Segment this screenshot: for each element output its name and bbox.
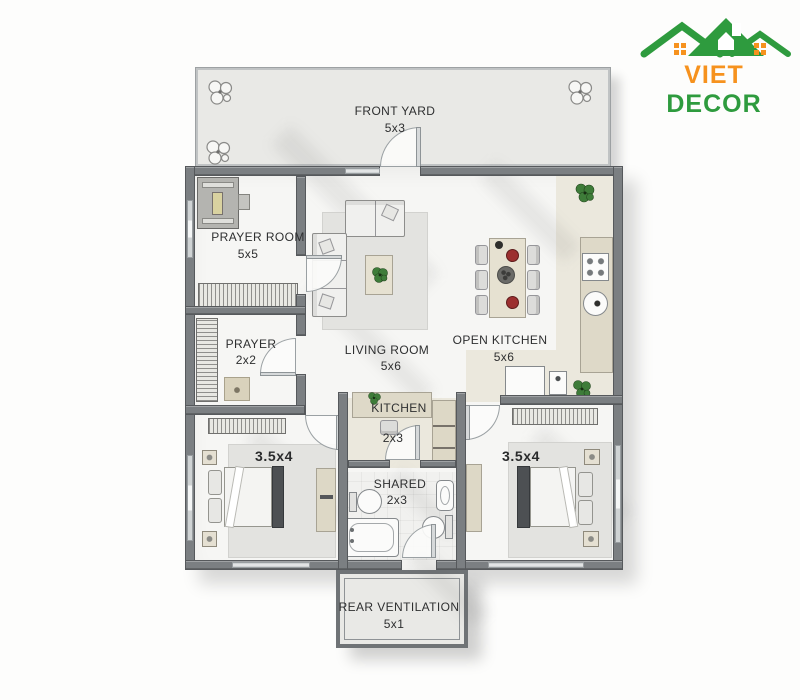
wall-kitchen-shared-2 [420,460,456,468]
prayer-shelving [196,318,218,402]
dining-chair [527,270,540,290]
rear-ventilation-label: REAR VENTILATION [339,600,460,614]
sofa-top [345,200,405,237]
wardrobe-right [512,408,598,425]
wall-kitchen-shared-1 [348,460,390,468]
bathtub-faucet [350,528,354,532]
living-room-size: 5x6 [381,359,402,373]
bathtub [344,518,399,557]
prayer-label: PRAYER [226,337,277,351]
tomato-plate [506,296,519,309]
nightstand-plant [202,531,217,547]
dining-chair [475,245,488,265]
grape-plate [497,266,515,284]
window-bedroom-right-bottom [488,562,584,568]
wall-bedroom-right-top [500,395,623,405]
plant-icon [573,181,597,205]
utility-sink [549,371,567,395]
altar-side-table [238,194,250,210]
window-bedroom-right-side [615,445,621,543]
toilet-left-bowl [357,489,382,514]
living-room-label: LIVING ROOM [345,343,429,357]
viet-decor-logo: VIET DECOR [636,10,792,86]
nightstand-plant [583,531,599,547]
shared-size: 2x3 [387,493,408,507]
logo-word-viet: VIET [684,61,744,89]
chimney-shape [732,23,741,36]
prayer-room-size: 5x5 [238,247,259,261]
prayer-size: 2x2 [236,353,257,367]
altar-center-piece [212,192,223,215]
shared-label: SHARED [374,477,426,491]
round-sink [583,291,608,316]
stove [582,253,609,281]
altar-shelf-top [202,182,234,188]
floor-plan-canvas: VIET DECOR FRONT YARD 5x3 REAR VENTILATI… [0,0,800,700]
flower-icon [204,138,234,168]
logo-wordmark: VIET DECOR [636,61,792,119]
wall-prayer-vertical-1 [296,176,306,256]
toilet-right-tank [445,515,453,539]
bedroom-left-desk [316,468,336,532]
window-bedroom-left-bottom [232,562,310,568]
window-top-wall [345,168,380,174]
tomato-plate [506,249,519,262]
plant-icon [370,265,390,285]
bed-right-footboard [517,466,530,528]
bedroom-right-size: 3.5x4 [502,448,540,464]
dining-chair [475,270,488,290]
prayer-door-leaf [260,372,296,376]
bathtub-inner [349,523,394,552]
dining-chair [527,245,540,265]
wardrobe-left [208,418,286,434]
open-kitchen-size: 5x6 [494,350,515,364]
bed-right-pillow [578,500,593,525]
wall-top-right [420,166,623,176]
laptop [320,495,333,499]
bedroom-right-cabinet [466,464,482,532]
flower-icon [566,78,596,108]
entrance-door-leaf [416,127,421,167]
front-yard-label: FRONT YARD [355,104,436,118]
front-yard-size: 5x3 [385,121,406,135]
nightstand-plant [584,449,600,465]
orange-window-left [674,43,686,55]
window-bedroom-left-side [187,455,193,541]
bed-left-footboard [272,466,284,528]
prayer-mat [224,377,250,401]
rear-ventilation-size: 5x1 [384,617,405,631]
wall-kitchen-left [338,392,348,570]
wall-kitchen-right [456,392,466,570]
bed-left-pillow [208,470,222,495]
open-kitchen-label: OPEN KITCHEN [453,333,548,347]
bedroom-left-size: 3.5x4 [255,448,293,464]
kitchen-tall-cabinet [432,400,456,462]
wall-bedroom-left-top-1 [185,405,305,415]
altar-shelf-bottom [202,218,234,224]
prayer-room-label: PRAYER ROOM [211,230,305,244]
dining-chair [527,295,540,315]
altar-cabinet [197,177,239,229]
toilet-left-tank [349,492,357,512]
rear-door-leaf [431,524,436,558]
kitchen-label: KITCHEN [371,401,426,415]
flower-icon [206,78,236,108]
logo-roof-icon [636,10,792,58]
bed-left-pillow [208,498,222,523]
prayer-room-shelf [198,283,298,307]
bath-sink-bowl [440,486,450,505]
dining-chair [475,295,488,315]
wall-prayer-divider [185,306,306,315]
kitchen-door-leaf [415,425,420,460]
nightstand-plant [202,450,217,465]
bed-right-pillow [578,472,593,497]
kitchen-size: 2x3 [383,431,404,445]
wall-prayer-vertical-2 [296,294,306,336]
logo-word-decor: DECOR [666,90,761,118]
window-prayer-room [187,200,193,258]
prayer-room-door-leaf [306,255,342,259]
bathtub-drain [350,539,354,543]
bath-sink [436,480,454,511]
bottle [495,241,503,249]
